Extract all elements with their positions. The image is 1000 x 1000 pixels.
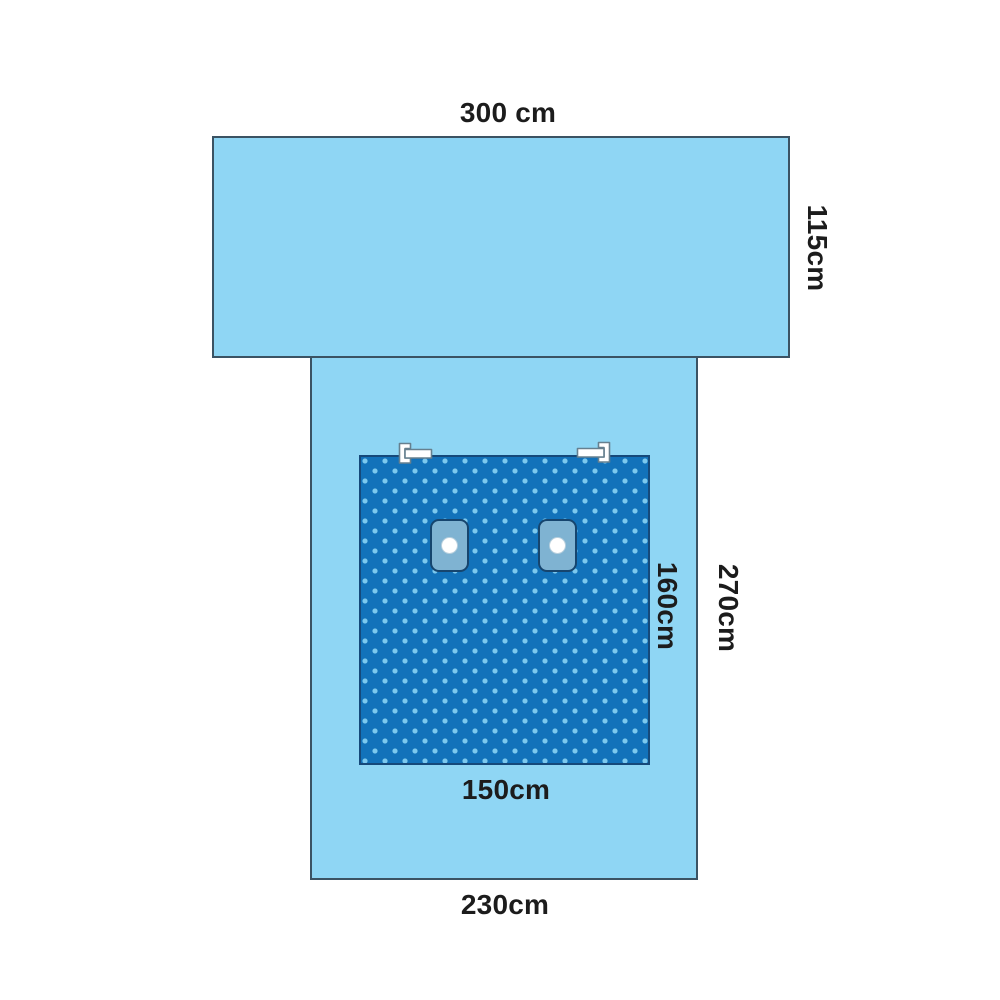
reinforced-patterned-area [359,455,650,765]
fenestration-hole-right [550,538,565,553]
dimension-label-lower-panel-height: 270cm [712,564,744,652]
tape-tab-icon [396,442,433,465]
fenestration-hole-left [442,538,457,553]
adhesive-patch-left [430,519,469,572]
dimension-label-top-width: 300 cm [460,97,556,129]
tape-tab-icon [576,441,613,464]
adhesive-patch-right [538,519,577,572]
dimension-label-fenestration-height: 160cm [651,562,683,650]
dimension-label-lower-panel-width: 230cm [461,889,549,921]
dimension-label-top-panel-height: 115cm [801,205,833,292]
tape-tab-left [396,442,433,465]
surgical-drape-diagram: 300 cm 115cm 160cm 270cm 150cm 230cm [0,0,1000,1000]
dimension-label-fenestration-width: 150cm [462,774,550,806]
tape-tab-right [576,441,613,464]
top-drape-panel [212,136,790,358]
